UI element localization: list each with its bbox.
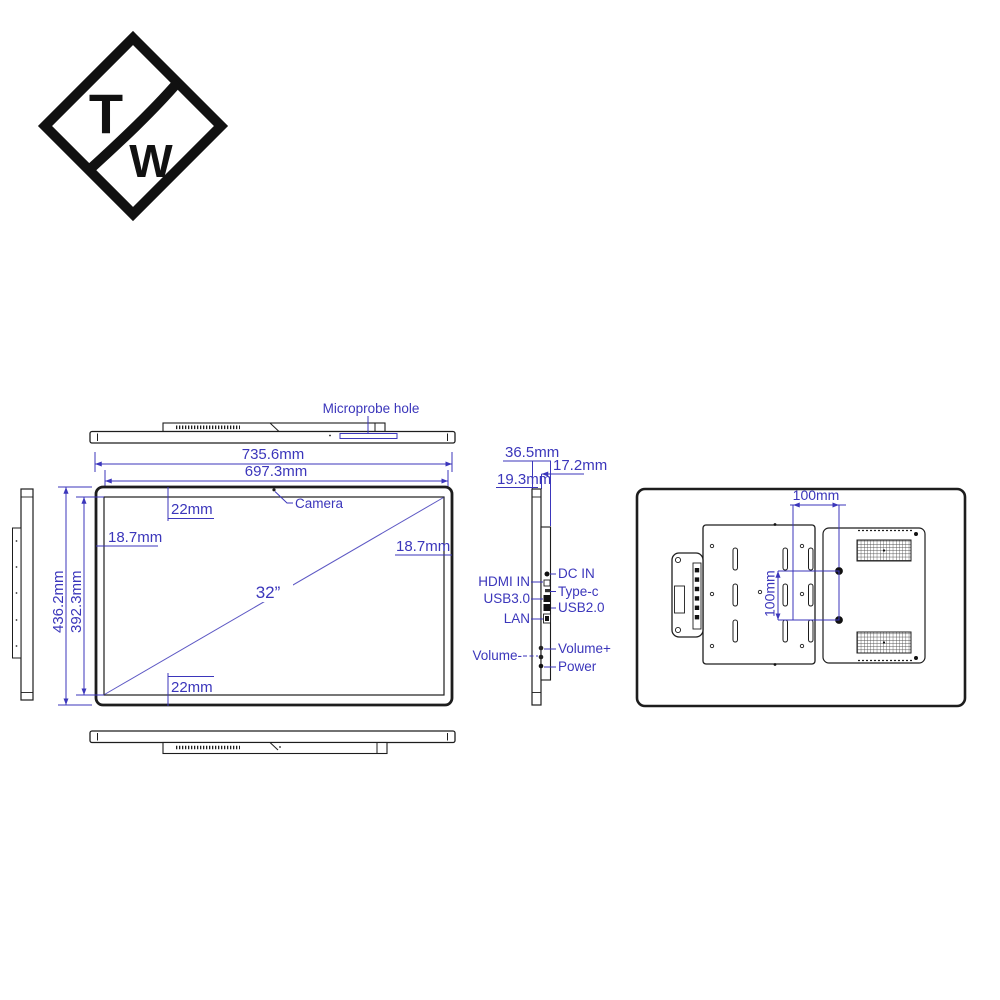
type-c-label: Type-c (558, 584, 599, 599)
bracket-port (695, 615, 699, 619)
usb3-label: USB3.0 (483, 591, 530, 606)
bracket-port (695, 568, 699, 572)
lan-port-inner (545, 616, 549, 621)
total-depth-label: 36.5mm (505, 444, 559, 461)
left-side-screw-dot (16, 592, 18, 594)
top-view-dot (329, 435, 331, 437)
housing-corner-screw (914, 656, 918, 660)
microprobe-hole-label: Microprobe hole (323, 401, 420, 416)
bottom-offset-label: 22mm (171, 679, 213, 696)
plate-slot (809, 584, 814, 606)
camera-label: Camera (295, 496, 344, 511)
camera-dot (272, 488, 275, 491)
hdmi-port (544, 580, 550, 586)
bracket-port (695, 606, 699, 610)
vesa-horizontal-label: 100mm (793, 487, 840, 503)
side-panel-profile (532, 489, 541, 705)
bracket-corner-screw (675, 627, 680, 632)
hdmi-label: HDMI IN (478, 574, 530, 589)
back-depth-label: 17.2mm (553, 457, 607, 474)
diagonal-size-label: 32” (256, 583, 281, 602)
monitor-dimension-drawing: T W Microprobe hole 735.6mm 697.3mm 32” (0, 0, 1000, 1000)
bottom-view-back-box (163, 743, 387, 754)
plate-slot (783, 548, 788, 570)
left-side-view (13, 489, 34, 700)
bottom-view-panel-bar (90, 731, 455, 743)
bracket-cutout (675, 586, 685, 613)
left-side-panel (21, 489, 33, 700)
housing-corner-screw (914, 532, 918, 536)
bracket-corner-screw (675, 557, 680, 562)
plate-screw-hole (800, 644, 803, 647)
left-side-screw-dot (16, 566, 18, 568)
grille-center-dot (883, 641, 885, 643)
plate-screw-hole (800, 592, 803, 595)
usb2-label: USB2.0 (558, 600, 605, 615)
power-button (539, 664, 544, 669)
volume-up-button (539, 646, 544, 651)
plate-screw-hole (710, 592, 713, 595)
logo-letter-bottom: W (129, 135, 173, 187)
back-view: 100mm 100mm (637, 487, 965, 706)
top-view-panel-bar (90, 432, 455, 444)
technical-drawing-page: T W Microprobe hole 735.6mm 697.3mm 32” (0, 0, 1000, 1000)
plate-slot (733, 548, 738, 570)
inner-width-label: 697.3mm (245, 463, 308, 480)
lan-label: LAN (504, 611, 530, 626)
plate-slot (809, 548, 814, 570)
bottom-view (90, 731, 455, 754)
usb2-port (544, 604, 551, 611)
left-side-screw-dot (16, 619, 18, 621)
plate-slot (783, 584, 788, 606)
plate-slot (733, 584, 738, 606)
outer-height-label: 436.2mm (50, 570, 67, 633)
plate-slot (733, 620, 738, 642)
bracket-port (695, 596, 699, 600)
left-side-screw-dot (16, 645, 18, 647)
vesa-vertical-label: 100mm (762, 570, 778, 617)
plate-screw-hole (710, 644, 713, 647)
outer-width-label: 735.6mm (242, 446, 305, 463)
right-offset-label: 18.7mm (396, 538, 450, 555)
bracket-port (695, 587, 699, 591)
bracket-port (695, 577, 699, 581)
dc-in-port (545, 572, 550, 577)
grille-center-dot (883, 549, 885, 551)
top-view: Microprobe hole (90, 401, 455, 443)
top-offset-label: 22mm (171, 501, 213, 518)
logo-letter-top: T (89, 82, 123, 145)
plate-screw-hole (710, 544, 713, 547)
plate-slot (783, 620, 788, 642)
type-c-port (545, 589, 550, 592)
mounting-plate (703, 525, 815, 664)
plate-slot (809, 620, 814, 642)
front-view: 32” Camera 22mm 18.7mm 18.7mm 22mm (96, 487, 452, 706)
volume-up-label: Volume+ (558, 641, 611, 656)
volume-down-button (539, 655, 544, 660)
power-label: Power (558, 659, 597, 674)
inner-height-label: 392.3mm (68, 570, 85, 633)
volume-down-label: Volume- (472, 648, 522, 663)
front-depth-label: 19.3mm (497, 471, 551, 488)
bottom-view-dot (279, 746, 281, 748)
dc-in-label: DC IN (558, 566, 595, 581)
plate-edge-screw (774, 663, 777, 666)
plate-screw-hole (800, 544, 803, 547)
left-offset-label: 18.7mm (108, 529, 162, 546)
brand-logo: T W (45, 38, 221, 214)
usb3-port (544, 595, 551, 602)
left-side-screw-dot (16, 540, 18, 542)
plate-edge-screw (774, 523, 777, 526)
port-side-view: 36.5mm 17.2mm 19.3mm HDMI IN USB3.0 (472, 444, 611, 705)
